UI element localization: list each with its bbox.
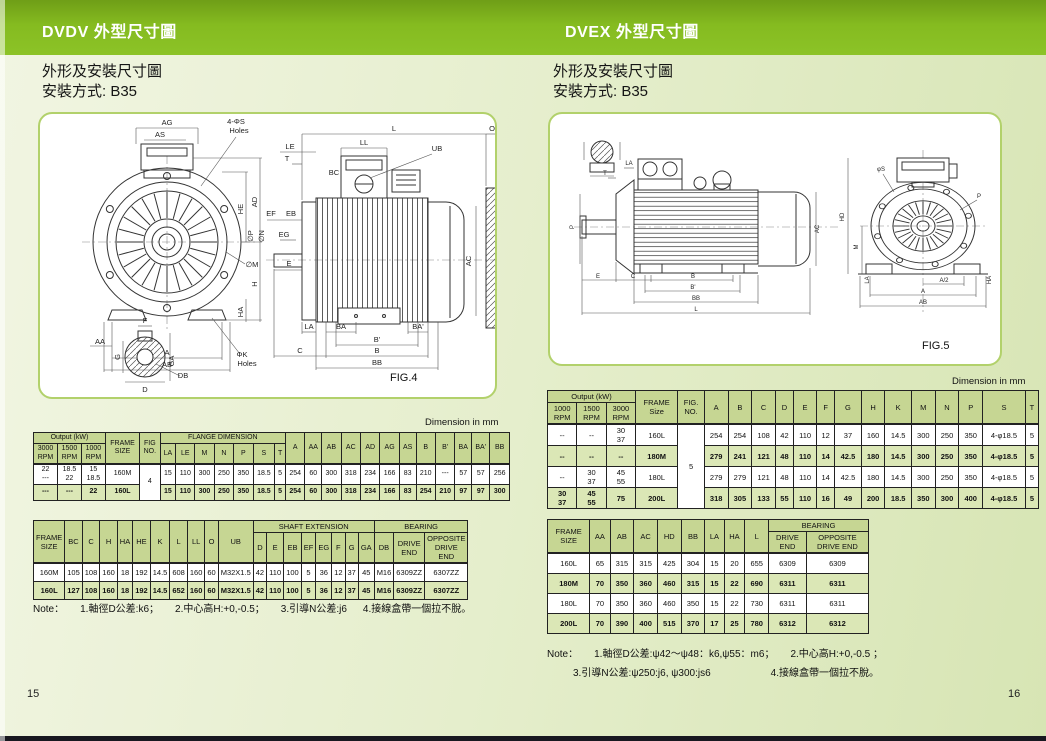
dimension-label: B' — [690, 285, 695, 291]
dimension-label: HE — [236, 204, 245, 214]
table-cell: 110 — [176, 464, 195, 484]
table-cell: 350 — [610, 574, 634, 594]
dimension-label: C — [297, 346, 303, 355]
table-row: ------22160L1511030025035018.55254603003… — [34, 484, 510, 500]
dimension-label: M — [854, 245, 860, 250]
dimension-label: L — [694, 307, 698, 313]
table-cell: 390 — [610, 614, 634, 634]
table-cell: 160L — [34, 582, 65, 600]
table-cell: 304 — [681, 553, 705, 574]
column-header: C — [752, 391, 776, 425]
table-cell: 200 — [861, 488, 885, 509]
table-cell: 350 — [959, 424, 983, 446]
dimension-label: BA' — [412, 322, 424, 331]
dimension-labels: LATPECBB'BBLACHDMφSPLAHAA/2AAB — [570, 161, 993, 313]
column-header: H — [100, 521, 118, 564]
dimension-label: B — [374, 346, 379, 355]
page-title-left: DVDV 外型尺寸圖 — [42, 18, 177, 42]
column-header: G — [835, 391, 862, 425]
dimension-label: EF — [266, 209, 276, 218]
table-cell: 48 — [775, 446, 793, 467]
table-cell: 6311 — [806, 574, 868, 594]
table-cell: 250 — [935, 446, 959, 467]
column-header: BC — [65, 521, 83, 564]
dimension-label: A/2 — [939, 278, 949, 284]
table-row: 180L70350360460350152273063116311 — [548, 594, 869, 614]
column-header: HD — [657, 520, 681, 554]
table-cell: 180 — [861, 467, 885, 488]
table-cell: 18 — [117, 582, 132, 600]
dimension-label: AG — [162, 118, 173, 127]
dimension-label: LL — [360, 138, 368, 147]
table-cell: 300 — [490, 484, 510, 500]
column-header: LE — [176, 444, 195, 464]
table-cell: 655 — [745, 553, 769, 574]
table-cell: 730 — [745, 594, 769, 614]
table-cell: 4-φ18.5 — [983, 424, 1026, 446]
column-header: S — [253, 444, 275, 464]
table-cell: 37 — [345, 582, 358, 600]
table-row: 22 ---18.5 2215 18.5160M4151103002503501… — [34, 464, 510, 484]
column-header: C — [82, 521, 100, 564]
column-header: LA — [160, 444, 176, 464]
table-cell: 6309ZZ — [394, 563, 425, 582]
column-header: M — [911, 391, 935, 425]
table-cell: 110 — [176, 484, 195, 500]
dimension-label: DB — [178, 371, 188, 380]
table-cell: 16 — [817, 488, 835, 509]
column-header: AB — [322, 433, 341, 465]
subtitle-line2: 安裝方式: B35 — [553, 82, 673, 102]
table-cell: 350 — [234, 484, 253, 500]
table-cell: -- — [548, 446, 577, 467]
table-cell: 6312 — [769, 614, 807, 634]
header-band: DVDV 外型尺寸圖 DVEX 外型尺寸圖 — [0, 0, 1046, 55]
side-view — [574, 159, 840, 315]
table-cell: 279 — [704, 446, 728, 467]
table-cell: 160 — [187, 563, 205, 582]
table-cell: 6307ZZ — [425, 563, 468, 582]
dimension-label: HA — [236, 307, 245, 317]
column-header: AB — [610, 520, 634, 554]
table-cell: 15 — [705, 594, 724, 614]
table-cell: 70 — [590, 614, 610, 634]
table-cell: 45 — [358, 582, 374, 600]
table-cell: 315 — [634, 553, 658, 574]
dimension-label: O — [489, 124, 495, 133]
column-header: F — [332, 533, 345, 564]
catalog-page: DVDV 外型尺寸圖 DVEX 外型尺寸圖 外形及安裝尺寸圖 安裝方式: B35… — [0, 0, 1046, 741]
table-cell: 460 — [657, 574, 681, 594]
table-cell: 241 — [728, 446, 752, 467]
table-row: ----30 37160L525425410842110123716014.53… — [548, 424, 1039, 446]
column-header: Output (kW) — [548, 391, 636, 403]
dimension-label: ∅N — [257, 230, 266, 242]
dimension-label: UB — [432, 144, 442, 153]
dimension-label: 4-ΦS — [227, 117, 245, 126]
table-cell: M32X1.5 — [218, 563, 253, 582]
table-cell: -- — [548, 467, 577, 488]
table-row: 180M70350360460315152269063116311 — [548, 574, 869, 594]
flange-dimension-table-dvex: Output (kW)FRAME SizeFIG. NO.ABCDEFGHKMN… — [547, 390, 1039, 509]
table-cell: 425 — [657, 553, 681, 574]
table-cell: 14.5 — [885, 467, 912, 488]
table-cell: 4-φ18.5 — [983, 446, 1026, 467]
table-cell: 83 — [399, 464, 416, 484]
column-header: AD — [360, 433, 379, 465]
table-cell: 4-φ18.5 — [983, 467, 1026, 488]
table-cell: 18.5 — [885, 488, 912, 509]
table-cell: 6309ZZ — [394, 582, 425, 600]
table-row: 30 3745 5575200L31830513355110164920018.… — [548, 488, 1039, 509]
table-cell: 36 — [316, 582, 332, 600]
column-header: AG — [380, 433, 399, 465]
table-cell: 192 — [133, 582, 151, 600]
table-cell: 110 — [267, 563, 284, 582]
table-cell: 30 37 — [548, 488, 577, 509]
table-cell: M16 — [374, 563, 394, 582]
column-header: 3000 RPM — [34, 444, 58, 464]
dimension-label: EG — [279, 230, 290, 239]
table-cell: 110 — [793, 446, 816, 467]
dimension-label: BB — [372, 358, 382, 367]
table-cell: 318 — [704, 488, 728, 509]
table-cell: 160M — [34, 563, 65, 582]
table-cell: 254 — [286, 484, 305, 500]
table-cell: 254 — [704, 424, 728, 446]
column-header: BB — [490, 433, 510, 465]
table-cell: 250 — [214, 484, 233, 500]
table-cell: 250 — [214, 464, 233, 484]
note-items: 1.軸徑D公差:k6；2.中心高H:+0,-0.5；3.引導N公差:j64.接線… — [80, 600, 471, 615]
figure-box-fig4: AGAS4-ΦSHolesHEAD∅MHAHAAAABΦKHolesFGGADD… — [38, 112, 497, 399]
column-header: FLANGE DIMENSION — [160, 433, 286, 444]
dimension-label: P — [570, 225, 576, 229]
table-cell: 350 — [959, 467, 983, 488]
table-cell: 49 — [835, 488, 862, 509]
table-cell: 18 — [117, 563, 132, 582]
table-cell: 160M — [105, 464, 139, 484]
column-header: Output (kW) — [34, 433, 106, 444]
column-header: A — [286, 433, 305, 465]
table-cell: 4 — [140, 464, 160, 500]
shaft-detail — [584, 141, 620, 176]
table-cell: 6307ZZ — [425, 582, 468, 600]
dimension-label: P — [977, 194, 981, 200]
dimension-label: ΦK — [237, 350, 248, 359]
column-header: AA — [590, 520, 610, 554]
table-cell: 100 — [284, 582, 302, 600]
dimension-label: H — [250, 281, 259, 286]
table-cell: 300 — [322, 484, 341, 500]
table-cell: 166 — [380, 484, 399, 500]
table-cell: 55 — [775, 488, 793, 509]
table-cell: 37 — [835, 424, 862, 446]
table-cell: --- — [34, 484, 58, 500]
table-cell: 127 — [65, 582, 83, 600]
note-items: 3.引導N公差:ψ250:j6, ψ300:js64.接線盒帶一個拉不脫。 — [573, 664, 1027, 679]
column-header: T — [275, 444, 286, 464]
table-cell: 30 37 — [606, 424, 635, 446]
table-cell: 254 — [286, 464, 305, 484]
table-cell: 315 — [681, 574, 705, 594]
motor-dimension-drawing-b35: AGAS4-ΦSHolesHEAD∅MHAHAAAABΦKHolesFGGADD… — [40, 114, 495, 397]
table-cell: 400 — [634, 614, 658, 634]
table-cell: 6309 — [769, 553, 807, 574]
table-cell: 60 — [205, 582, 218, 600]
table-cell: 300 — [195, 464, 214, 484]
dimension-label: AC — [815, 224, 821, 233]
column-header: B — [416, 433, 435, 465]
table-row: 160L1271081601819214.565216060M32X1.5421… — [34, 582, 468, 600]
table-cell: 57 — [455, 464, 472, 484]
note-item: 1.軸徑D公差:k6； — [80, 600, 159, 615]
table-cell: 256 — [490, 464, 510, 484]
table-cell: 15 — [705, 574, 724, 594]
dimension-label: T — [603, 171, 607, 177]
note-item: 4.接線盒帶一個拉不脫。 — [771, 664, 879, 679]
table-cell: 652 — [170, 582, 188, 600]
column-header: T — [1025, 391, 1038, 425]
subtitle-right: 外形及安裝尺寸圖 安裝方式: B35 — [553, 62, 673, 103]
table-cell: 5 — [1025, 424, 1038, 446]
table-cell: 15 — [160, 484, 176, 500]
note-item: 3.引導N公差:ψ250:j6, ψ300:js6 — [573, 664, 711, 679]
dimension-label: HD — [840, 212, 846, 221]
front-view — [82, 128, 262, 372]
column-header: FIG. NO. — [678, 391, 705, 425]
column-header: EG — [316, 533, 332, 564]
table-cell: 70 — [590, 574, 610, 594]
dimension-unit-note-right: Dimension in mm — [952, 376, 1025, 387]
note-item: 2.中心高H:+0,-0.5 ； — [790, 645, 883, 660]
table-cell: M16 — [374, 582, 394, 600]
table-cell: 690 — [745, 574, 769, 594]
column-header: B — [728, 391, 752, 425]
table-cell: -- — [577, 446, 606, 467]
dimension-label: E — [596, 274, 600, 280]
footer-bar — [0, 736, 1046, 741]
table-cell: 65 — [590, 553, 610, 574]
column-header: FRAME SIZE — [548, 520, 590, 554]
table-cell: 250 — [935, 467, 959, 488]
table-cell: 160L — [105, 484, 139, 500]
note-item: 4.接線盒帶一個拉不脫。 — [363, 600, 471, 615]
column-header: AC — [634, 520, 658, 554]
column-header: BA — [455, 433, 472, 465]
dimension-label: C — [631, 274, 636, 280]
table-cell: 15 18.5 — [81, 464, 105, 484]
table-cell: 14.5 — [150, 563, 170, 582]
table-row: 200L70390400515370172578063126312 — [548, 614, 869, 634]
table-cell: 37 — [345, 563, 358, 582]
table-cell: 14.5 — [885, 424, 912, 446]
table-cell: 5 — [301, 582, 316, 600]
table-cell: 14.5 — [885, 446, 912, 467]
dimension-label: LE — [285, 142, 294, 151]
column-header: EF — [301, 533, 316, 564]
dimension-label: AS — [155, 130, 165, 139]
table-cell: 254 — [416, 484, 435, 500]
column-header: 1500 RPM — [577, 403, 606, 425]
table-cell: 180M — [548, 574, 590, 594]
table-cell: 42 — [253, 582, 266, 600]
note-label: Note： — [33, 600, 64, 617]
column-header: E — [267, 533, 284, 564]
column-header: N — [935, 391, 959, 425]
table-cell: 315 — [610, 553, 634, 574]
column-header: K — [885, 391, 912, 425]
table-cell: 608 — [170, 563, 188, 582]
dimension-label: BB — [692, 296, 700, 302]
column-header: L — [170, 521, 188, 564]
table-cell: 22 — [81, 484, 105, 500]
subtitle-line2: 安裝方式: B35 — [42, 82, 162, 102]
dimension-label: AB — [919, 300, 927, 306]
dimension-label: ∅M — [246, 260, 259, 269]
column-header: 1000 RPM — [81, 444, 105, 464]
dimension-label: Holes — [237, 359, 256, 368]
table-cell: 45 55 — [577, 488, 606, 509]
table-cell: 6312 — [806, 614, 868, 634]
table-cell: 350 — [681, 594, 705, 614]
dimension-label: D — [142, 385, 148, 394]
table-cell: 300 — [195, 484, 214, 500]
table-cell: 305 — [728, 488, 752, 509]
table-cell: 350 — [911, 488, 935, 509]
table-cell: 4-φ18.5 — [983, 488, 1026, 509]
table-cell: -- — [606, 446, 635, 467]
table-cell: 20 — [724, 553, 745, 574]
column-header: FRAME SIZE — [105, 433, 139, 465]
table-cell: 108 — [82, 582, 100, 600]
note-label: Note： — [547, 645, 578, 662]
table-cell: 360 — [634, 574, 658, 594]
front-view — [848, 150, 988, 312]
table-cell: 97 — [472, 484, 490, 500]
table-cell: 108 — [82, 563, 100, 582]
table-cell: 180L — [636, 467, 678, 488]
table-cell: 350 — [234, 464, 253, 484]
table-cell: 110 — [267, 582, 284, 600]
column-header: HE — [133, 521, 151, 564]
column-header: BB — [681, 520, 705, 554]
note-items: 1.軸徑D公差:ψ42～ψ48：k6,ψ55：m6；2.中心高H:+0,-0.5… — [594, 645, 883, 660]
table-cell: 5 — [301, 563, 316, 582]
table-cell: 160L — [548, 553, 590, 574]
column-header: AC — [341, 433, 360, 465]
table-cell: 14.5 — [150, 582, 170, 600]
dimension-label: A — [921, 289, 925, 295]
column-header: GA — [358, 533, 374, 564]
table-cell: 460 — [657, 594, 681, 614]
side-view — [266, 134, 495, 370]
page-number-right: 16 — [1008, 688, 1020, 700]
column-header: 1500 RPM — [57, 444, 81, 464]
column-header: P — [959, 391, 983, 425]
table-cell: 22 — [724, 594, 745, 614]
column-header: EB — [284, 533, 302, 564]
table-cell: 18.5 22 — [57, 464, 81, 484]
dimension-label: AD — [250, 196, 259, 207]
table-row: ------180M279241121481101442.518014.5300… — [548, 446, 1039, 467]
dimension-label: BA — [336, 322, 346, 331]
table-cell: 110 — [793, 424, 816, 446]
table-cell: 300 — [911, 446, 935, 467]
column-header: FRAME Size — [636, 391, 678, 425]
page-number-left: 15 — [27, 688, 39, 700]
figure-caption: FIG.5 — [922, 340, 950, 352]
table-cell: 105 — [65, 563, 83, 582]
table-cell: 160 — [187, 582, 205, 600]
table-cell: 45 — [358, 563, 374, 582]
dimension-label: B' — [374, 335, 381, 344]
table-cell: 279 — [728, 467, 752, 488]
table-cell: 12 — [817, 424, 835, 446]
dimension-label: HA — [987, 276, 993, 284]
table-cell: 83 — [399, 484, 416, 500]
table-cell: 160 — [861, 424, 885, 446]
table-cell: 121 — [752, 467, 776, 488]
table-row: --30 3745 55180L279279121481101442.51801… — [548, 467, 1039, 488]
table-cell: 210 — [435, 484, 454, 500]
table-cell: 45 55 — [606, 467, 635, 488]
table-cell: 250 — [935, 424, 959, 446]
table-cell: 70 — [590, 594, 610, 614]
table-cell: 180L — [548, 594, 590, 614]
dimension-label: E — [286, 259, 291, 268]
subtitle-left: 外形及安裝尺寸圖 安裝方式: B35 — [42, 62, 162, 103]
table-cell: 12 — [332, 582, 345, 600]
column-header: LL — [187, 521, 205, 564]
dimension-label: GA — [167, 356, 176, 367]
note-item: 3.引導N公差:j6 — [281, 600, 347, 615]
column-header: SHAFT EXTENSION — [253, 521, 374, 533]
column-header: AA — [305, 433, 322, 465]
column-header: B' — [435, 433, 454, 465]
table-cell: 360 — [634, 594, 658, 614]
dimension-label: G — [113, 354, 122, 360]
table-cell: 5 — [275, 464, 286, 484]
column-header: D — [775, 391, 793, 425]
table-cell: 22 — [724, 574, 745, 594]
column-header: A — [704, 391, 728, 425]
column-header: 1000 RPM — [548, 403, 577, 425]
figure-caption: FIG.4 — [390, 372, 418, 384]
table-cell: 160L — [636, 424, 678, 446]
column-header: BEARING — [769, 520, 869, 532]
column-header: DRIVE END — [769, 532, 807, 554]
column-header: HA — [724, 520, 745, 554]
table-cell: 5 — [1025, 467, 1038, 488]
table-cell: 30 37 — [577, 467, 606, 488]
table-cell: 5 — [678, 424, 705, 509]
table-cell: 121 — [752, 446, 776, 467]
table-cell: --- — [435, 464, 454, 484]
table-cell: 100 — [284, 563, 302, 582]
mounting-bearing-table-dvex: FRAME SIZEAAABACHDBBLAHALBEARINGDRIVE EN… — [547, 519, 869, 634]
table-cell: 180M — [636, 446, 678, 467]
column-header: FIG NO. — [140, 433, 160, 465]
table-cell: 48 — [775, 467, 793, 488]
table-cell: -- — [548, 424, 577, 446]
column-header: H — [861, 391, 885, 425]
table-cell: 42 — [775, 424, 793, 446]
column-header: S — [983, 391, 1026, 425]
dimension-label: B — [691, 274, 695, 280]
dimension-label: φS — [877, 167, 885, 173]
table-cell: 370 — [681, 614, 705, 634]
